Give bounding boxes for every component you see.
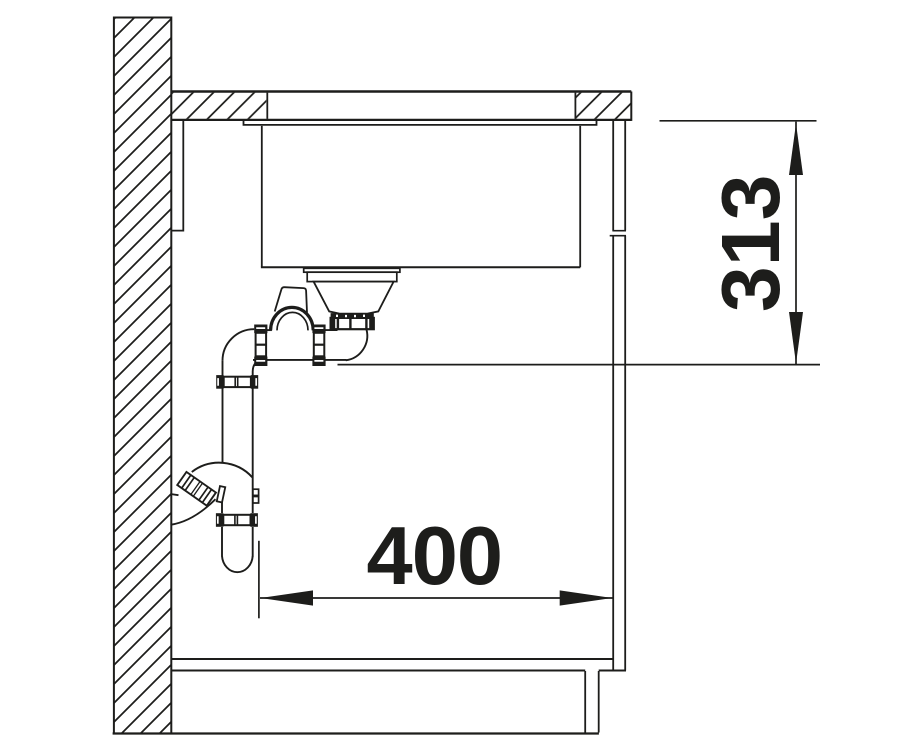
svg-text:313: 313 bbox=[705, 174, 797, 312]
svg-text:400: 400 bbox=[367, 509, 502, 602]
